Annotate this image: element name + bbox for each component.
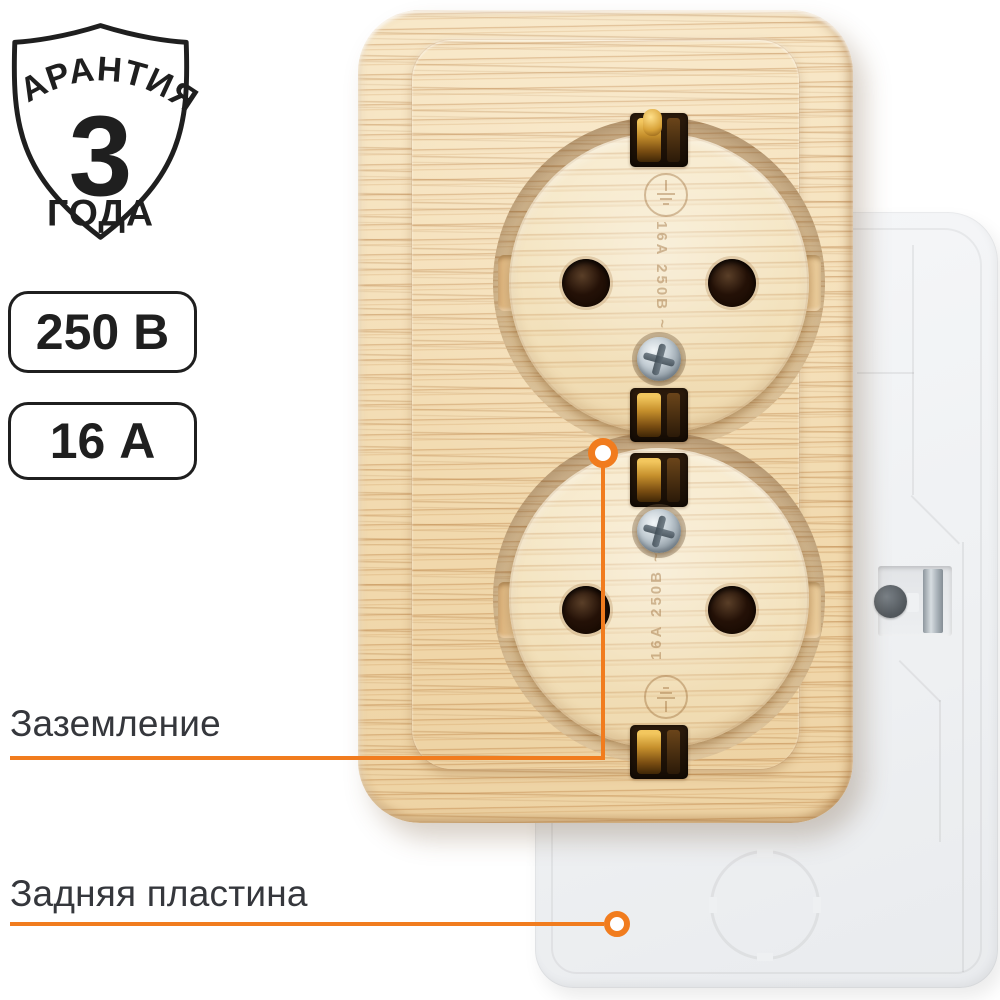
rating-emboss: 16A 250B ~: [654, 221, 669, 331]
backplate-callout-line: [10, 922, 604, 926]
pin-hole-right: [708, 586, 756, 634]
current-badge: 16 А: [8, 402, 197, 480]
socket-inner-panel: 16A 250B ~ 16A 250B ~: [412, 40, 799, 769]
center-screw: [637, 509, 681, 553]
ground-symbol-emboss: [644, 675, 688, 719]
knockout-gap: [813, 897, 821, 913]
claw-screw: [874, 585, 907, 618]
warranty-badge: ГАРАНТИЯ 3 ГОДА: [2, 12, 199, 246]
ground-clip: [630, 725, 688, 779]
backplate-callout-dot: [604, 911, 630, 937]
grounding-callout-label: Заземление: [10, 704, 221, 745]
warranty-bottom-text: ГОДА: [47, 192, 154, 234]
ground-clip: [630, 113, 688, 167]
ground-clip: [630, 453, 688, 507]
voltage-badge: 250 В: [8, 291, 197, 373]
ground-clip: [630, 388, 688, 442]
grounding-callout-dot: [588, 438, 618, 468]
product-annotation-image: 16A 250B ~ 16A 250B ~: [0, 0, 1000, 1000]
back-plate-groove: [939, 700, 941, 842]
socket-face-bottom: 16A 250B ~: [509, 448, 809, 748]
knockout-gap: [757, 849, 773, 857]
cable-knockout-ring: [710, 850, 820, 960]
grounding-callout-line: [10, 756, 605, 760]
socket-face-top: 16A 250B ~: [509, 133, 809, 433]
knockout-gap: [757, 953, 773, 961]
mounting-claw-slot: [878, 566, 952, 636]
pin-hole-left: [562, 259, 610, 307]
voltage-value: 250 В: [36, 303, 169, 361]
grounding-callout-line: [601, 455, 605, 760]
back-plate-groove: [912, 245, 914, 495]
current-value: 16 А: [50, 412, 156, 470]
mounting-claw-tab: [906, 593, 919, 612]
knockout-gap: [709, 897, 717, 913]
center-screw: [637, 337, 681, 381]
ground-clip-pin: [643, 109, 662, 136]
backplate-callout-label: Задняя пластина: [10, 874, 308, 915]
back-plate-groove: [857, 372, 914, 374]
back-plate-groove: [962, 542, 964, 972]
ground-symbol-emboss: [644, 173, 688, 217]
mounting-claw: [923, 569, 943, 633]
socket-front-frame: 16A 250B ~ 16A 250B ~: [358, 10, 853, 823]
pin-hole-right: [708, 259, 756, 307]
rating-emboss: 16A 250B ~: [649, 550, 664, 660]
